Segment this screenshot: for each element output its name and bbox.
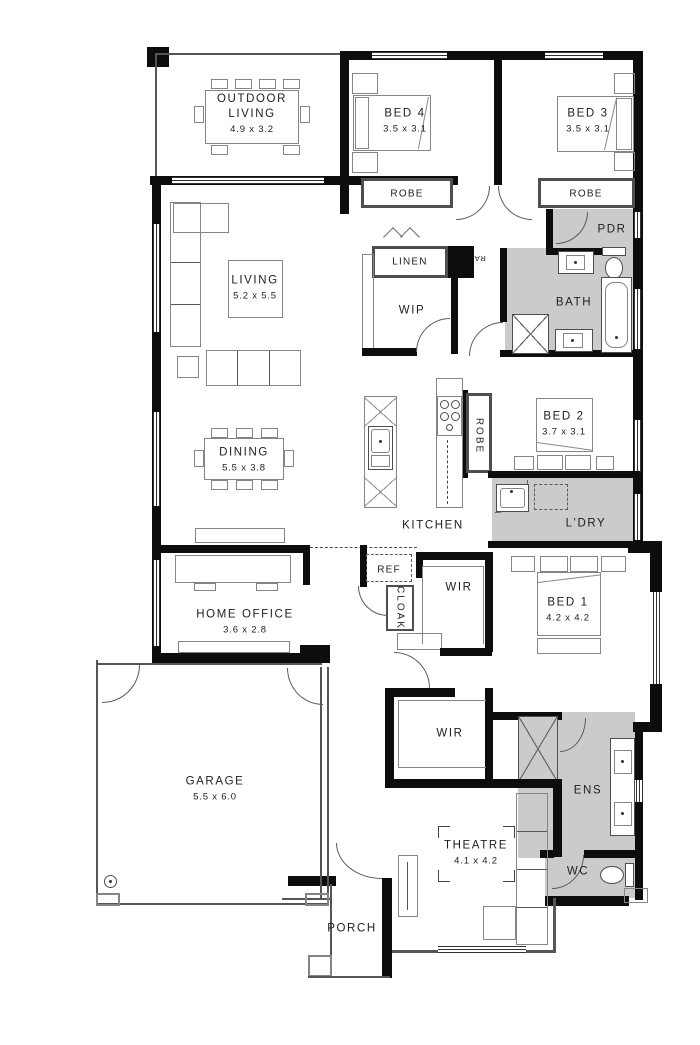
office-chair: [194, 583, 216, 591]
room-label-outdoor-living: OUTDOOR LIVING 4.9 x 3.2: [204, 92, 300, 136]
window: [634, 212, 641, 238]
wall: [416, 552, 492, 560]
burner-icon: [451, 400, 460, 409]
tv-cabinet-line: [407, 862, 408, 910]
window: [634, 289, 641, 349]
label-ens: ENS: [574, 784, 602, 799]
wall: [494, 176, 502, 185]
toilet-cistern: [625, 863, 634, 887]
burner-icon: [446, 424, 453, 431]
wir-shelving: [422, 566, 484, 644]
drain-icon: [615, 336, 618, 339]
window: [653, 592, 660, 684]
cushion-line: [517, 907, 547, 908]
tap-icon: [621, 812, 624, 815]
ottoman: [177, 356, 199, 378]
wip-door-arc: [416, 318, 450, 352]
label-robe-bed3: ROBE: [569, 188, 602, 201]
cloak-door-arc: [358, 586, 388, 616]
label-wip: WIP: [399, 304, 426, 319]
chair: [236, 480, 253, 490]
wall: [584, 850, 640, 858]
wall: [485, 552, 493, 652]
chair: [261, 428, 278, 438]
duct-block: [448, 246, 474, 278]
cushion-line: [171, 262, 200, 263]
wall: [157, 53, 345, 55]
cushion-line: [171, 304, 200, 305]
garage-door-arc: [102, 665, 140, 703]
window: [636, 780, 643, 802]
label-ra-vent: RA: [474, 253, 485, 263]
wall: [500, 248, 507, 322]
label-bracket: [503, 870, 515, 882]
chair: [284, 450, 294, 467]
label-ref: REF: [377, 564, 401, 577]
bed-end-bench: [537, 638, 601, 654]
bed3-door-arc: [498, 186, 532, 220]
room-label-bed2: BED 2 3.7 x 3.1: [542, 409, 586, 438]
wall: [385, 688, 455, 697]
sofa: [206, 350, 301, 386]
label-porch: PORCH: [327, 922, 377, 937]
toilet-icon: [600, 866, 624, 884]
chair: [283, 79, 300, 89]
wall: [488, 541, 634, 548]
tv-cabinet: [398, 855, 418, 917]
wall: [155, 53, 157, 179]
bedside-table: [514, 456, 534, 470]
window: [545, 52, 603, 59]
chair: [211, 428, 228, 438]
room-label-dining: DINING 5.5 x 3.8: [219, 445, 269, 474]
toilet-icon: [605, 257, 623, 279]
cushion-line: [237, 351, 238, 385]
chair: [211, 79, 228, 89]
garage-entry-door-arc: [287, 668, 323, 705]
office-desk: [175, 555, 291, 583]
pier: [96, 893, 120, 906]
bedside-table: [352, 152, 378, 173]
label-robe-hall: ROBE: [473, 418, 486, 454]
tap-icon: [571, 339, 574, 342]
bedside-table: [614, 73, 635, 94]
bedside-table: [596, 456, 614, 470]
label-cloak: CLOAK: [394, 586, 407, 630]
window: [153, 412, 160, 506]
office-chair: [256, 583, 278, 591]
pantry-shelf: [362, 254, 374, 354]
wall: [340, 51, 349, 214]
chair: [236, 428, 253, 438]
tap-icon: [574, 261, 577, 264]
wall: [650, 546, 662, 592]
chair: [194, 106, 204, 123]
wall: [545, 896, 629, 906]
room-label-bed3: BED 3 3.5 x 3.1: [566, 106, 610, 135]
chair: [259, 79, 276, 89]
room-label-garage: GARAGE 5.5 x 6.0: [186, 774, 245, 803]
garage-wall: [96, 903, 329, 905]
label-wc: WC: [567, 865, 589, 880]
wall: [473, 779, 562, 788]
window: [153, 224, 160, 332]
tap-icon: [379, 440, 382, 443]
garage-wall: [327, 667, 329, 900]
pillow: [540, 556, 568, 572]
wall: [382, 878, 392, 978]
chair: [261, 480, 278, 490]
porch-post: [308, 955, 332, 977]
toilet-cistern: [602, 247, 626, 256]
floor-plan: OUTDOOR LIVING 4.9 x 3.2 BED 4 3.5 x 3.1…: [0, 0, 700, 1045]
hall-door-arc: [394, 652, 430, 688]
wall: [488, 471, 640, 478]
living-sofa-chaise: [173, 203, 229, 233]
wall: [553, 898, 556, 952]
wall: [494, 58, 502, 180]
label-bath: BATH: [556, 296, 592, 311]
wall: [635, 730, 643, 780]
bedside-table: [352, 73, 378, 94]
wall: [485, 688, 493, 785]
pillow: [570, 556, 598, 572]
window: [372, 52, 447, 59]
window: [438, 946, 526, 953]
sink-drainer: [371, 455, 390, 467]
label-bracket: [438, 826, 450, 838]
pillow: [565, 455, 591, 470]
wall: [362, 348, 417, 356]
bed4-door-arc: [456, 186, 490, 220]
window: [634, 494, 641, 540]
room-label-bed1: BED 1 4.2 x 4.2: [546, 595, 590, 624]
chair: [283, 145, 300, 155]
label-bracket: [503, 826, 515, 838]
room-label-theatre: THEATRE 4.1 x 4.2: [444, 838, 508, 867]
post: [300, 645, 330, 663]
shower-icon: [512, 314, 549, 354]
pier: [305, 893, 329, 906]
label-ldry: L'DRY: [566, 517, 607, 532]
wall: [303, 545, 310, 585]
label-bracket: [438, 870, 450, 882]
chair: [211, 480, 228, 490]
pillow: [537, 455, 563, 470]
chair: [194, 450, 204, 467]
pier: [624, 888, 648, 903]
bath-door-arc: [469, 322, 503, 356]
window: [634, 420, 641, 472]
wall: [385, 779, 473, 788]
roof-access-icon: [400, 227, 420, 247]
room-label-home-office: HOME OFFICE 3.6 x 2.8: [196, 607, 293, 636]
sideboard: [195, 528, 285, 543]
window: [153, 560, 160, 646]
porch-edge: [308, 976, 390, 978]
window: [172, 177, 324, 184]
wall: [553, 779, 562, 857]
washer-space: [534, 484, 568, 510]
cushion-line: [269, 351, 270, 385]
island-hatch: [365, 478, 396, 506]
entry-door-arc: [336, 843, 382, 879]
label-wir-lower: WIR: [436, 727, 463, 742]
pillow: [616, 98, 632, 150]
wall: [385, 688, 394, 788]
wall: [451, 278, 458, 354]
tap-icon: [510, 490, 513, 493]
sofa-chaise: [483, 906, 516, 940]
label-wir-upper: WIR: [445, 581, 472, 596]
cushion-line: [517, 869, 547, 870]
cabinet-dash-line: [447, 440, 448, 504]
room-label-living: LIVING 5.2 x 5.5: [231, 273, 278, 302]
burner-icon: [451, 412, 460, 421]
bedside-table: [614, 152, 635, 171]
garage-wall: [96, 660, 98, 905]
bedside-table: [511, 556, 535, 572]
wall: [546, 209, 553, 253]
room-label-bed4: BED 4 3.5 x 3.1: [383, 106, 427, 135]
office-shelf: [178, 641, 290, 653]
cushion-line: [517, 831, 547, 832]
burner-icon: [440, 412, 449, 421]
label-pdr: PDR: [597, 223, 626, 238]
chair: [211, 145, 228, 155]
bedside-table: [601, 556, 626, 572]
tap-icon: [621, 760, 624, 763]
ens-shower-icon: [518, 716, 558, 782]
label-kitchen: KITCHEN: [402, 519, 464, 534]
pillow: [355, 97, 369, 149]
chair: [300, 106, 310, 123]
garage-floor-marker-dot: [109, 880, 112, 883]
island-hatch: [365, 398, 396, 426]
chair: [235, 79, 252, 89]
wall: [152, 545, 310, 553]
burner-icon: [440, 400, 449, 409]
label-linen: LINEN: [392, 256, 427, 269]
post: [147, 47, 169, 67]
label-robe-bed4: ROBE: [390, 188, 423, 201]
